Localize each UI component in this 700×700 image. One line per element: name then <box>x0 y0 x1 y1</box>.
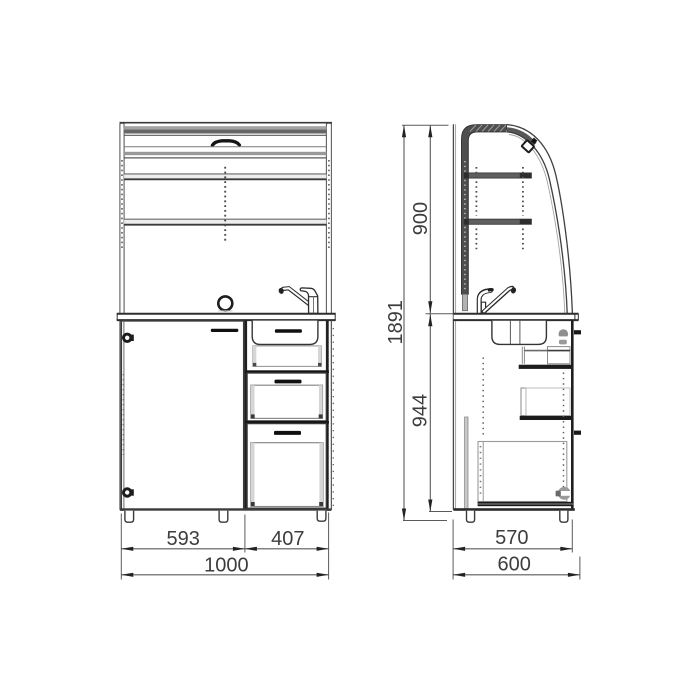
svg-text:1891: 1891 <box>385 300 407 345</box>
svg-text:1000: 1000 <box>204 555 249 577</box>
svg-text:593: 593 <box>167 528 200 550</box>
svg-text:600: 600 <box>498 553 531 575</box>
svg-text:570: 570 <box>495 527 528 549</box>
svg-text:944: 944 <box>410 394 432 427</box>
svg-text:407: 407 <box>271 528 304 550</box>
svg-text:900: 900 <box>410 202 432 235</box>
